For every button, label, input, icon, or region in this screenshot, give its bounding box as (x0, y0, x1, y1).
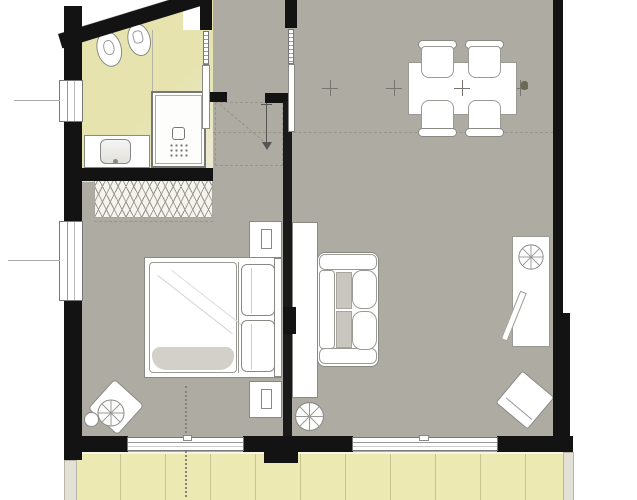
door-jamb (288, 29, 294, 64)
axis-cross (394, 80, 395, 96)
wall-left-mid (64, 120, 82, 223)
wall-partition (283, 101, 292, 452)
door-leaf (288, 64, 295, 132)
wall-right-low (553, 313, 570, 452)
bed-headboard (274, 258, 282, 377)
dining-chair-seat (468, 46, 501, 78)
wall-hall-return-left (210, 92, 227, 102)
vanity-faucet (113, 159, 118, 164)
window-living-balcony (352, 437, 498, 451)
dimension-line (14, 100, 60, 101)
wall-right-top (553, 0, 563, 313)
floor-plan (0, 0, 637, 500)
dining-chair-seat (421, 46, 454, 78)
wall-bottom-mid (243, 436, 353, 452)
balcony-edge-left (64, 460, 77, 500)
axis-marker-dot (521, 81, 528, 90)
door-jamb (203, 31, 209, 65)
wall-partition-column (283, 307, 296, 334)
window-bedroom-left (59, 221, 83, 301)
door-leaf (202, 65, 210, 129)
dimension-line (8, 260, 60, 261)
shower-drain-dots (169, 143, 190, 158)
bed-duvet-divider (238, 262, 239, 373)
bed-pillow (241, 320, 275, 372)
wall-bathroom-bottom (82, 168, 213, 181)
sofa (317, 252, 379, 367)
desk-chair (517, 243, 545, 271)
bathroom-divider-line (152, 30, 153, 94)
axis-cross (330, 80, 331, 96)
wardrobe-front-dashed (94, 221, 213, 222)
wall-balcony-pillar (264, 452, 298, 463)
wall-entry-stub-right (285, 0, 297, 28)
shower (151, 91, 206, 168)
wall-left-top (64, 6, 82, 82)
floor-balcony (76, 452, 564, 500)
window-bathroom (59, 80, 83, 122)
dining-chair (465, 128, 504, 137)
round-table (294, 401, 325, 432)
bedroom-ball-stool (84, 412, 99, 427)
wall-entry-stub-left (200, 0, 212, 30)
wall-bottom-left (78, 436, 128, 452)
entry-arrow (261, 100, 273, 150)
fan-side-table (96, 398, 126, 428)
dining-chair (418, 128, 457, 137)
nightstand (249, 381, 282, 418)
bed-blanket-foot (152, 347, 234, 370)
window-bedroom-balcony (127, 437, 244, 451)
wall-bottom-right (497, 436, 573, 452)
bed-pillow (241, 264, 275, 316)
wardrobe (94, 178, 213, 218)
axis-cross (462, 80, 463, 96)
balcony-edge-right (563, 452, 574, 500)
nightstand (249, 221, 282, 258)
